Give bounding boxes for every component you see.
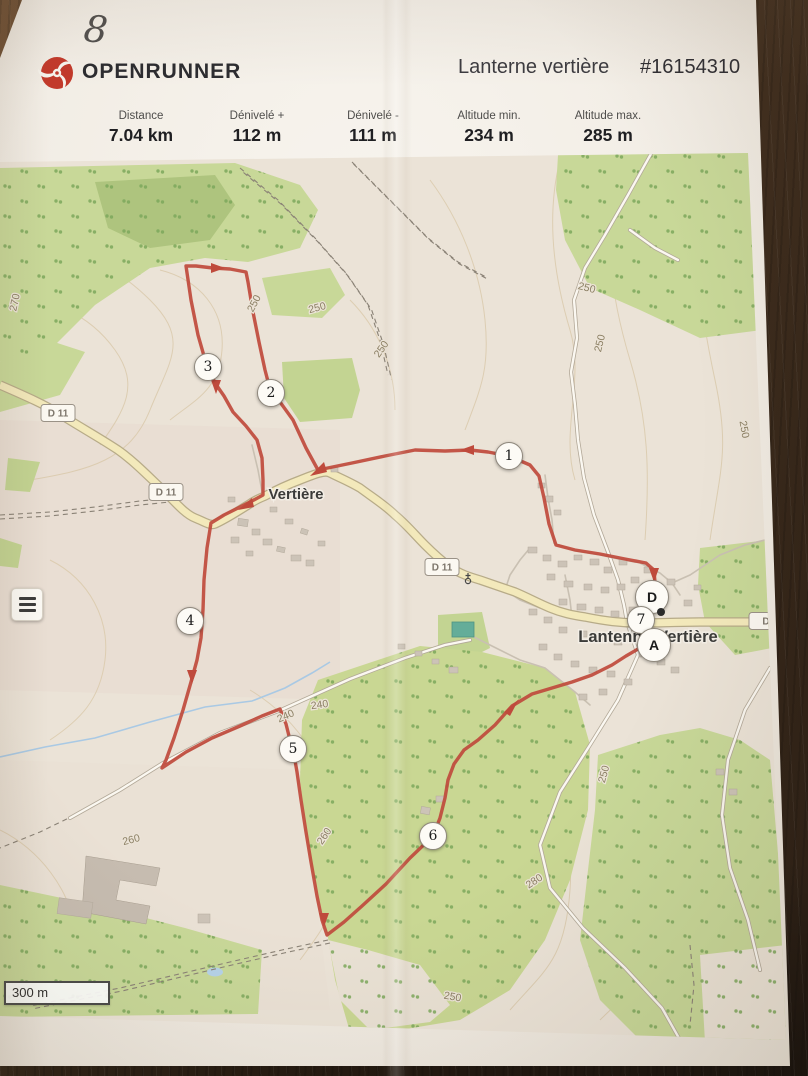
- waypoint-marker-3: 3: [194, 353, 222, 381]
- svg-text:D 11: D 11: [432, 563, 453, 574]
- svg-text:240: 240: [310, 698, 329, 712]
- waypoint-marker-1: 1: [495, 442, 523, 470]
- svg-text:D: D: [762, 617, 769, 628]
- waypoint-marker-4: 4: [176, 607, 204, 635]
- waypoint-marker-6: 6: [419, 822, 447, 850]
- hamburger-menu-icon: [19, 597, 36, 600]
- map-menu-button[interactable]: [11, 588, 43, 621]
- photo-of-printed-route-map: 8 OPENRUNNER Lanterne vertière #16154310…: [0, 0, 808, 1076]
- waypoint-marker-2: 2: [257, 379, 285, 407]
- route-start-dot: [657, 608, 665, 616]
- svg-text:D 11: D 11: [156, 488, 177, 499]
- map-scale-bar: 300 m: [4, 981, 110, 1005]
- sports-field: [452, 622, 474, 637]
- paper-sheet: 8 OPENRUNNER Lanterne vertière #16154310…: [0, 0, 808, 1076]
- waypoint-marker-5: 5: [279, 735, 307, 763]
- svg-text:D 11: D 11: [48, 409, 69, 420]
- svg-text:Vertière: Vertière: [268, 486, 323, 503]
- waypoint-marker-A: A: [637, 628, 671, 662]
- route-map: 2702502502502502502502402402602602802502…: [0, 0, 808, 1076]
